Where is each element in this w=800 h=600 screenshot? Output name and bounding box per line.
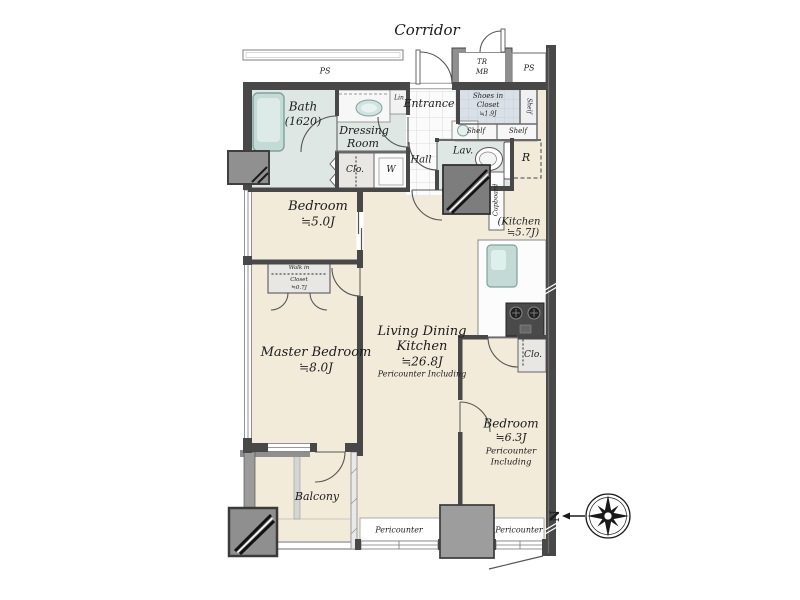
room-label-bath: Bath bbox=[289, 100, 318, 113]
room-label-shoes-1: Shoes in bbox=[473, 93, 503, 101]
label-trunk: TR bbox=[477, 59, 487, 67]
label-linen: Lin bbox=[394, 96, 404, 103]
column-top-left bbox=[228, 151, 269, 184]
label-closet-1: Clo. bbox=[346, 166, 364, 176]
room-note-ldk: Pericounter Including bbox=[378, 371, 467, 380]
exterior-swing-line bbox=[489, 556, 543, 569]
floorplan-graphics bbox=[0, 0, 800, 600]
bedroom1-sliding-door bbox=[357, 212, 364, 250]
room-label-hall: Hall bbox=[410, 155, 431, 166]
label-mailbox: MB bbox=[476, 69, 488, 77]
room-size-bedroom2: ≒6.3J bbox=[495, 432, 526, 444]
window-left-wall bbox=[245, 190, 252, 443]
entrance-door bbox=[410, 50, 452, 91]
label-shelf-b: Shelf bbox=[509, 128, 527, 136]
room-label-bedroom2: Bedroom bbox=[483, 417, 538, 430]
label-pericounter-right: Pericounter bbox=[495, 527, 543, 536]
column-bottom-center bbox=[440, 505, 494, 558]
compass-icon bbox=[562, 494, 630, 538]
room-size-bath: (1620) bbox=[285, 116, 322, 128]
room-label-ldk-1: Living Dining bbox=[378, 325, 467, 339]
column-bottom-left bbox=[229, 508, 277, 556]
window-bottom-right bbox=[496, 541, 544, 549]
room-label-entrance: Entrance bbox=[403, 98, 454, 110]
floorplan-page: Corridor PS TR MB PS Bath (1620) Dressin… bbox=[0, 0, 800, 600]
label-washer: W bbox=[386, 166, 395, 176]
vanity-sink bbox=[337, 90, 390, 122]
label-refrigerator: R bbox=[522, 152, 530, 164]
room-size-shoes: ≒1.9J bbox=[480, 112, 497, 119]
room-label-balcony: Balcony bbox=[295, 491, 339, 503]
room-note-bedroom2-2: Including bbox=[491, 458, 532, 467]
room-size-wic: ≒0.7J bbox=[291, 285, 307, 291]
label-ps-right: PS bbox=[524, 65, 535, 74]
room-size-bedroom1: ≒5.0J bbox=[301, 215, 335, 228]
room-size-master: ≒8.0J bbox=[299, 361, 333, 374]
label-ps-top: PS bbox=[320, 68, 331, 77]
window-master-balcony bbox=[266, 444, 312, 452]
window-bottom-left bbox=[361, 541, 438, 549]
room-label-ldk-2: Kitchen bbox=[397, 340, 448, 354]
room-note-bedroom2-1: Pericounter bbox=[486, 447, 537, 456]
room-label-bedroom1: Bedroom bbox=[288, 200, 348, 214]
room-label-wic-1: Walk in bbox=[289, 265, 310, 271]
room-label-wic-2: Closet bbox=[290, 277, 308, 283]
room-label-kitchen-1: (Kitchen bbox=[498, 217, 541, 228]
room-label-lavatory: Lav. bbox=[453, 146, 473, 157]
label-shelf-side: Shelf bbox=[525, 98, 532, 114]
room-label-master: Master Bedroom bbox=[261, 346, 372, 360]
room-label-dressing-2: Room bbox=[347, 138, 379, 150]
corridor-structures bbox=[243, 46, 546, 88]
label-pericounter-left: Pericounter bbox=[375, 527, 423, 536]
label-closet-2: Clo. bbox=[524, 351, 542, 361]
bathtub bbox=[253, 93, 284, 151]
room-label-corridor: Corridor bbox=[394, 22, 459, 39]
column-entrance bbox=[443, 165, 490, 214]
label-shelf-a: Shelf bbox=[467, 128, 485, 136]
room-label-shoes-2: Closet bbox=[477, 102, 499, 110]
room-label-dressing-1: Dressing bbox=[339, 125, 389, 137]
label-north: N bbox=[549, 510, 563, 522]
label-cupboard: Cupboard bbox=[492, 184, 499, 217]
room-size-ldk: ≒26.8J bbox=[401, 355, 443, 368]
room-label-kitchen-2: ≒5.7J) bbox=[507, 228, 539, 239]
stove-icon bbox=[506, 303, 544, 336]
